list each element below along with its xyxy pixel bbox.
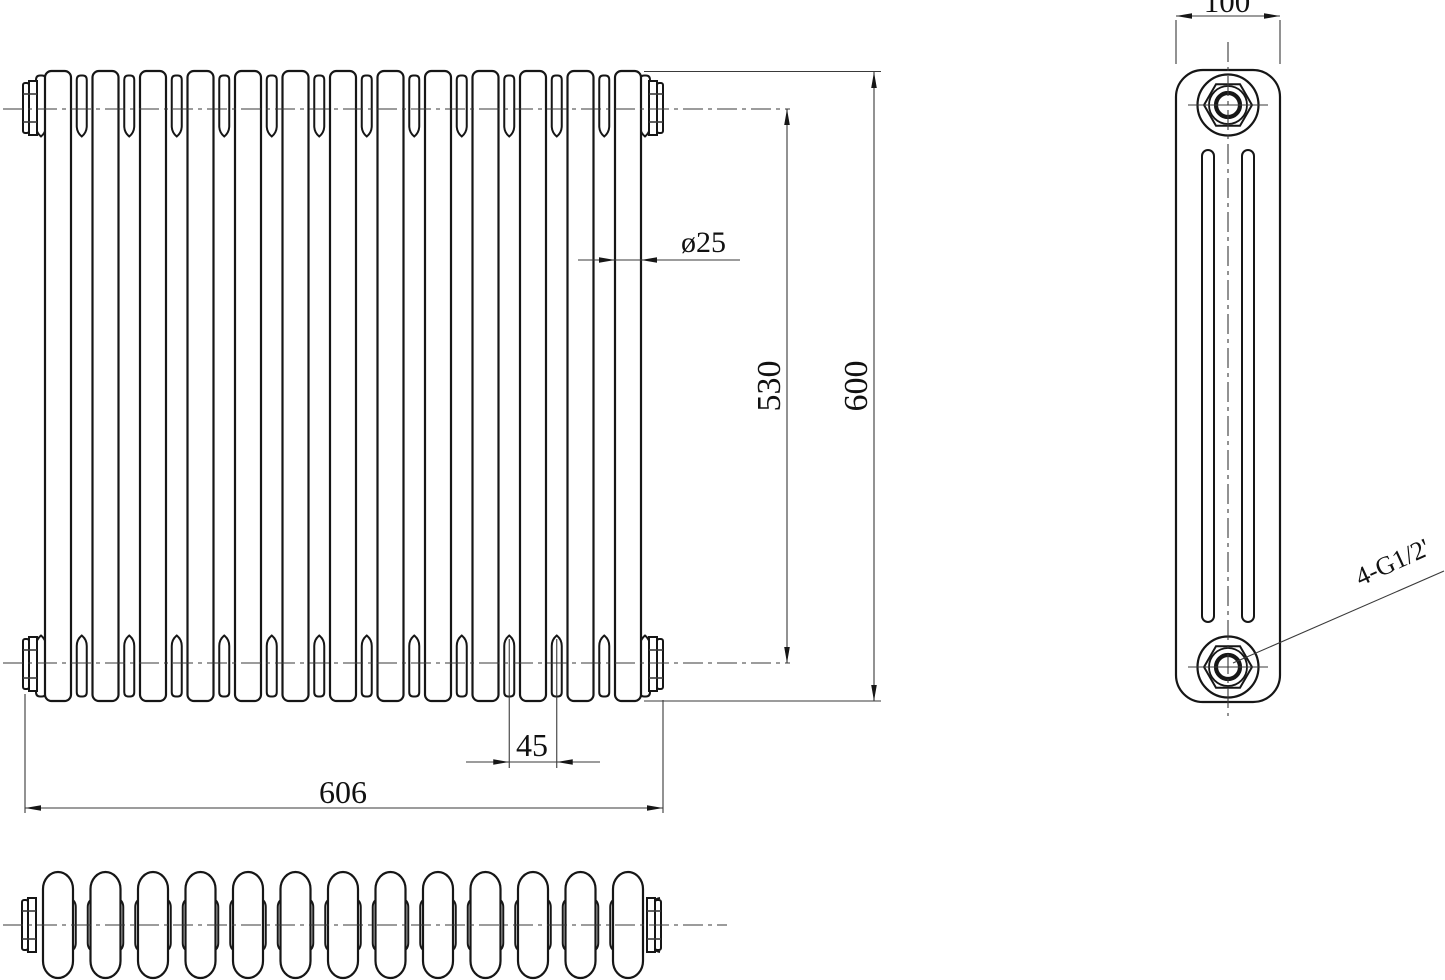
dimension-arrow bbox=[1176, 13, 1192, 19]
dimension-arrow bbox=[871, 72, 877, 88]
section-connector-top bbox=[219, 76, 229, 137]
dimension-arrow bbox=[784, 647, 790, 663]
dim-overall-height-label: 600 bbox=[838, 361, 875, 412]
dimension-arrow bbox=[493, 759, 509, 765]
dimension-arrow bbox=[871, 685, 877, 701]
radiator-column bbox=[330, 71, 356, 701]
radiator-column bbox=[378, 71, 404, 701]
section-connector-top bbox=[362, 76, 372, 137]
section-connector-top bbox=[314, 76, 324, 137]
radiator-column bbox=[188, 71, 214, 701]
dimension-arrow bbox=[599, 257, 615, 263]
dimension-arrow bbox=[641, 257, 657, 263]
section-connector-top bbox=[599, 76, 609, 137]
section-connector-top bbox=[267, 76, 277, 137]
section-connector-top bbox=[457, 76, 467, 137]
section-connector-top bbox=[504, 76, 514, 137]
plug-bottom-left bbox=[23, 637, 37, 691]
plug-bottom-right bbox=[649, 637, 663, 691]
radiator-column bbox=[283, 71, 309, 701]
front-view bbox=[3, 71, 790, 701]
connection-spec-label: 4-G1/2' bbox=[1351, 533, 1434, 592]
section-connector-top bbox=[124, 76, 134, 137]
radiator-column bbox=[615, 71, 641, 701]
dim-depth-label: 100 bbox=[1204, 0, 1251, 19]
dim-tube-diameter-label: ø25 bbox=[681, 226, 726, 259]
dim-overall-width-label: 606 bbox=[319, 774, 367, 810]
section-connector-bottom bbox=[77, 636, 87, 697]
dimension-arrow bbox=[784, 109, 790, 125]
radiator-column bbox=[425, 71, 451, 701]
section-connector-top bbox=[172, 76, 182, 137]
section-connector-bottom bbox=[314, 636, 324, 697]
dimension-arrow bbox=[557, 759, 573, 765]
radiator-column bbox=[520, 71, 546, 701]
section-connector-top bbox=[77, 76, 87, 137]
radiator-column bbox=[235, 71, 261, 701]
column-groove bbox=[1242, 150, 1254, 622]
radiator-column bbox=[93, 71, 119, 701]
plan-view bbox=[3, 872, 727, 978]
side-view bbox=[1176, 42, 1280, 716]
section-connector-bottom bbox=[362, 636, 372, 697]
radiator-column bbox=[568, 71, 594, 701]
drawing-sheet: ø25530600456061004-G1/2' bbox=[0, 0, 1445, 980]
technical-drawing: ø25530600456061004-G1/2' bbox=[0, 0, 1445, 980]
section-connector-bottom bbox=[457, 636, 467, 697]
section-connector-bottom bbox=[124, 636, 134, 697]
section-connector-bottom bbox=[267, 636, 277, 697]
radiator-column bbox=[140, 71, 166, 701]
section-connector-bottom bbox=[172, 636, 182, 697]
section-connector-top bbox=[409, 76, 419, 137]
dim-center-height-label: 530 bbox=[751, 361, 788, 412]
section-connector-bottom bbox=[409, 636, 419, 697]
dimension-arrow bbox=[25, 805, 41, 811]
section-connector-top bbox=[552, 76, 562, 137]
section-connector-bottom bbox=[219, 636, 229, 697]
column-groove bbox=[1202, 150, 1214, 622]
dim-section-pitch-label: 45 bbox=[516, 727, 548, 763]
dimension-arrow bbox=[1264, 13, 1280, 19]
radiator-column bbox=[473, 71, 499, 701]
plug-top-right bbox=[649, 81, 663, 135]
dimension-arrow bbox=[647, 805, 663, 811]
plug-top-left bbox=[23, 81, 37, 135]
section-connector-bottom bbox=[599, 636, 609, 697]
radiator-column bbox=[45, 71, 71, 701]
